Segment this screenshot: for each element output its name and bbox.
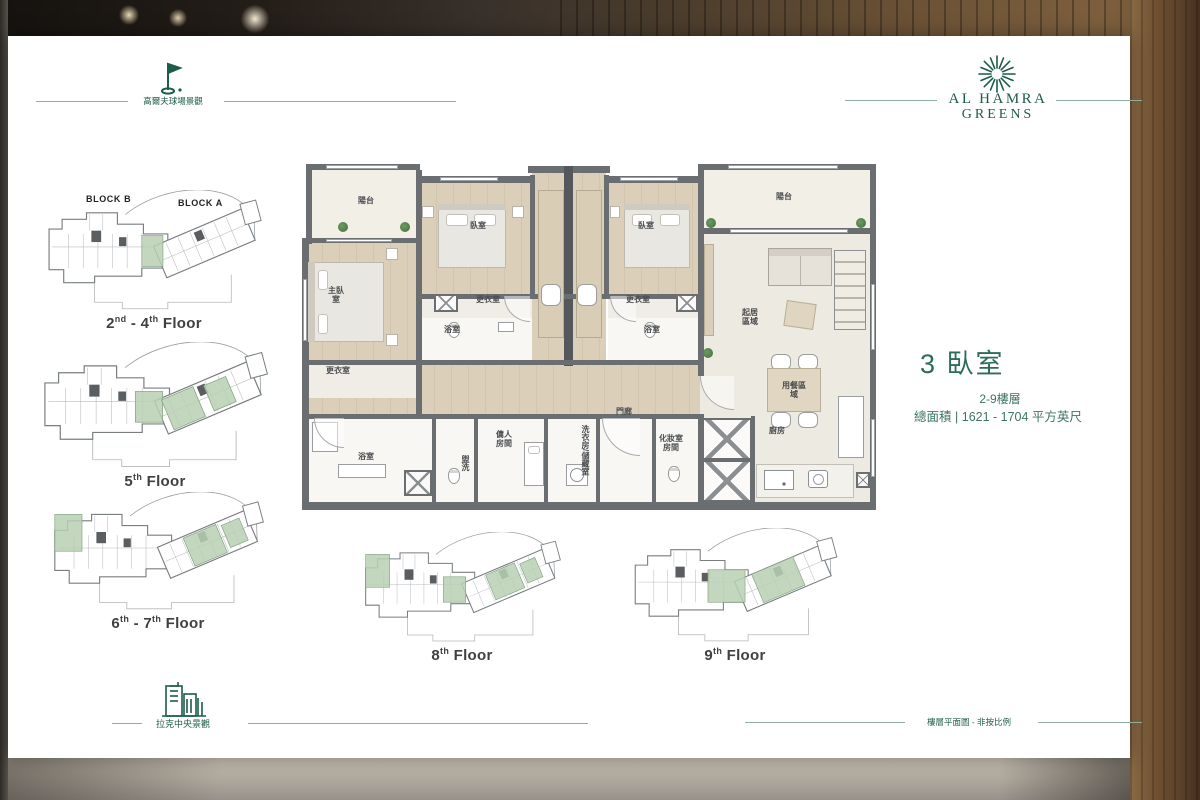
ceiling-light [118,4,140,26]
floor-label: 2nd - 4th Floor [28,314,280,332]
photo-edge-left [0,0,8,800]
kitchen-label: 廚房 [762,426,792,435]
block-a-label: BLOCK A [178,198,223,208]
floor-label: 5th Floor [22,472,288,490]
plant [856,218,866,228]
al-hamra-greens-logo-icon [975,52,1019,96]
laundry-storage-label: 洗衣房/儲藏室 [566,422,590,478]
keyplan-footprint [22,342,288,470]
wall [474,419,478,504]
staircase [834,250,866,330]
sliding-door [730,229,848,233]
floor-label: 6th - 7th Floor [22,614,294,632]
headboard [624,204,690,210]
divider-line [1056,100,1142,101]
wardrobe [434,294,458,312]
hallway-floor [418,362,700,416]
desk [538,190,564,338]
keyplan-footprint [28,190,280,312]
master-bedroom-label: 主臥室 [326,286,346,304]
city-buildings-icon [158,682,210,720]
pillow [528,446,540,454]
closet [702,460,752,502]
bedroom-label: 臥室 [454,221,502,230]
ceiling-light [168,8,188,28]
brand-line2: GREENS [930,108,1066,123]
window [326,165,398,169]
keyplan-floor-2-4: BLOCK B BLOCK A 2nd - 4th Floor [28,190,280,332]
floor-label: 8th Floor [328,646,596,664]
wall [530,175,535,297]
floor-label: 9th Floor [592,646,878,664]
bathroom-label: 浴室 [430,325,474,334]
fridge [838,396,864,458]
wall [604,175,609,297]
headboard [308,262,315,342]
wall [306,164,312,244]
golf-view-label: 高爾夫球場景觀 [128,95,218,107]
wood-ceiling-slats [560,0,1200,40]
console-cabinet [704,244,714,336]
photo-ceiling [0,0,1200,40]
dressing-room-label: 更衣室 [314,366,362,375]
window [728,165,838,169]
window [620,177,678,181]
closet [702,418,752,460]
pillow [318,314,328,334]
divider-line [745,722,905,723]
unit-floor-plan: 用餐區域 陽台 陽台 臥室 臥室 主臥室 更衣室 更衣室 更衣室 浴室 浴室 起… [298,164,878,512]
coffee-table [783,300,816,330]
wood-grain [1130,0,1200,800]
sliding-door [326,239,392,242]
window [303,279,307,341]
keyplan-footprint [22,492,294,612]
not-to-scale-note: 樓層平面圖 - 非按比例 [908,716,1030,728]
nightstand [610,206,620,218]
unit-area: 總面積 | 1621 - 1704 平方英尺 [880,406,1116,425]
keyplan-floor-5: 5th Floor [22,342,288,490]
brand-name: AL HAMRA GREENS [930,92,1066,122]
brochure-photo-scene: { "colors": { "brand_green": "#1d5c49", … [0,0,1200,800]
floor-shadow-left [0,758,220,800]
photo-floor [0,758,1200,800]
city-view-label: 拉克中央景觀 [128,717,238,730]
shaft [856,472,870,488]
ceiling-lamp [238,2,272,36]
wall-core [564,166,573,366]
bedroom-label: 臥室 [622,221,670,230]
keyplan-floor-9: 9th Floor [592,528,878,664]
wall [304,360,418,365]
brand-line1: AL HAMRA [930,92,1066,108]
unit-floors: 2-9樓層 [900,390,1100,407]
floor-shadow-right [1000,758,1140,800]
wall [596,419,600,504]
wall [420,360,704,365]
balcony-label: 陽台 [754,192,814,201]
desk [576,190,602,338]
divider-line [248,723,588,724]
nightstand [386,248,398,260]
dressing-room-label: 更衣室 [614,295,662,304]
unit-title: 3 臥室 [920,342,1005,381]
divider-line [224,101,456,102]
maid-room-label: 傭人房間 [494,430,514,448]
basin [498,322,514,332]
dining-table: 用餐區域 [767,368,821,412]
toilet [668,466,680,482]
keyplan-floor-8: 8th Floor [328,532,596,664]
window [871,284,875,350]
plant [703,348,713,358]
desk-chair [541,284,561,306]
sofa [768,248,832,286]
plant [400,222,410,232]
foyer-label: 門廊 [606,407,642,416]
kitchen-sink [808,470,828,488]
plant [338,222,348,232]
dressing-room-label: 更衣室 [464,295,512,304]
window [440,177,498,181]
wall [302,502,876,510]
wall [432,419,436,504]
divider-line [36,101,128,102]
nightstand [386,334,398,346]
stove [764,470,794,490]
nightstand [422,206,434,218]
balcony-label: 陽台 [338,196,394,205]
window [871,419,875,477]
vanity [338,464,386,478]
bathroom-label: 浴室 [344,452,388,461]
wall [544,419,548,504]
desk-chair [577,284,597,306]
divider-line [845,100,937,101]
wardrobe [676,294,698,312]
shaft [404,470,432,496]
nightstand [512,206,524,218]
dining-chair [798,412,818,428]
keyplan-footprint [592,528,878,644]
living-area-label: 起居區域 [740,308,760,326]
divider-line [1038,722,1142,723]
headboard [438,204,506,210]
dining-area-label: 用餐區域 [781,381,807,399]
powder-room-label: 化妝室房間 [658,434,684,452]
block-b-label: BLOCK B [86,194,131,204]
wall [306,414,702,419]
wall [652,419,656,504]
powder-label: 盥洗 [458,446,470,480]
keyplan-footprint [328,532,596,644]
photo-wood-panel [1130,0,1200,800]
bathroom-label: 浴室 [630,325,674,334]
golf-flag-icon [154,60,188,96]
keyplan-floor-6-7: 6th - 7th Floor [22,492,294,632]
plant [706,218,716,228]
